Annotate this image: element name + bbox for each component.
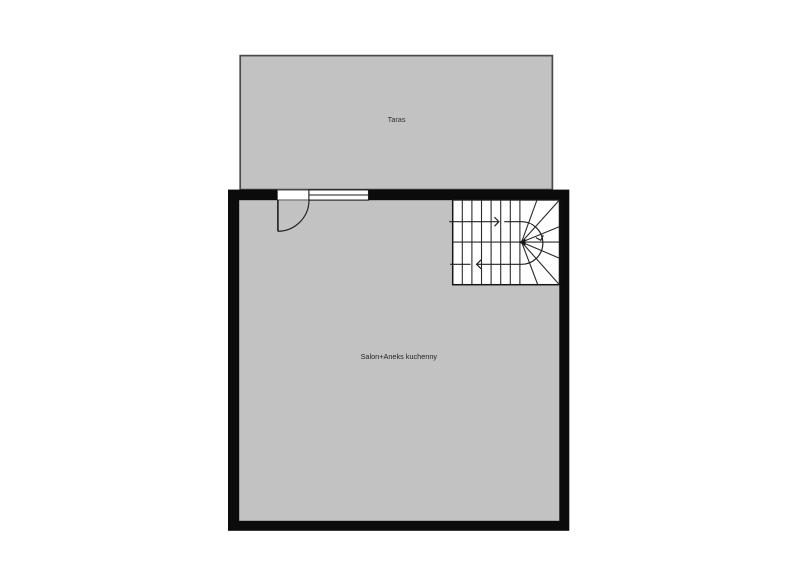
svg-text:Salon+Aneks kuchenny: Salon+Aneks kuchenny — [361, 352, 438, 361]
svg-text:Taras: Taras — [388, 115, 406, 124]
